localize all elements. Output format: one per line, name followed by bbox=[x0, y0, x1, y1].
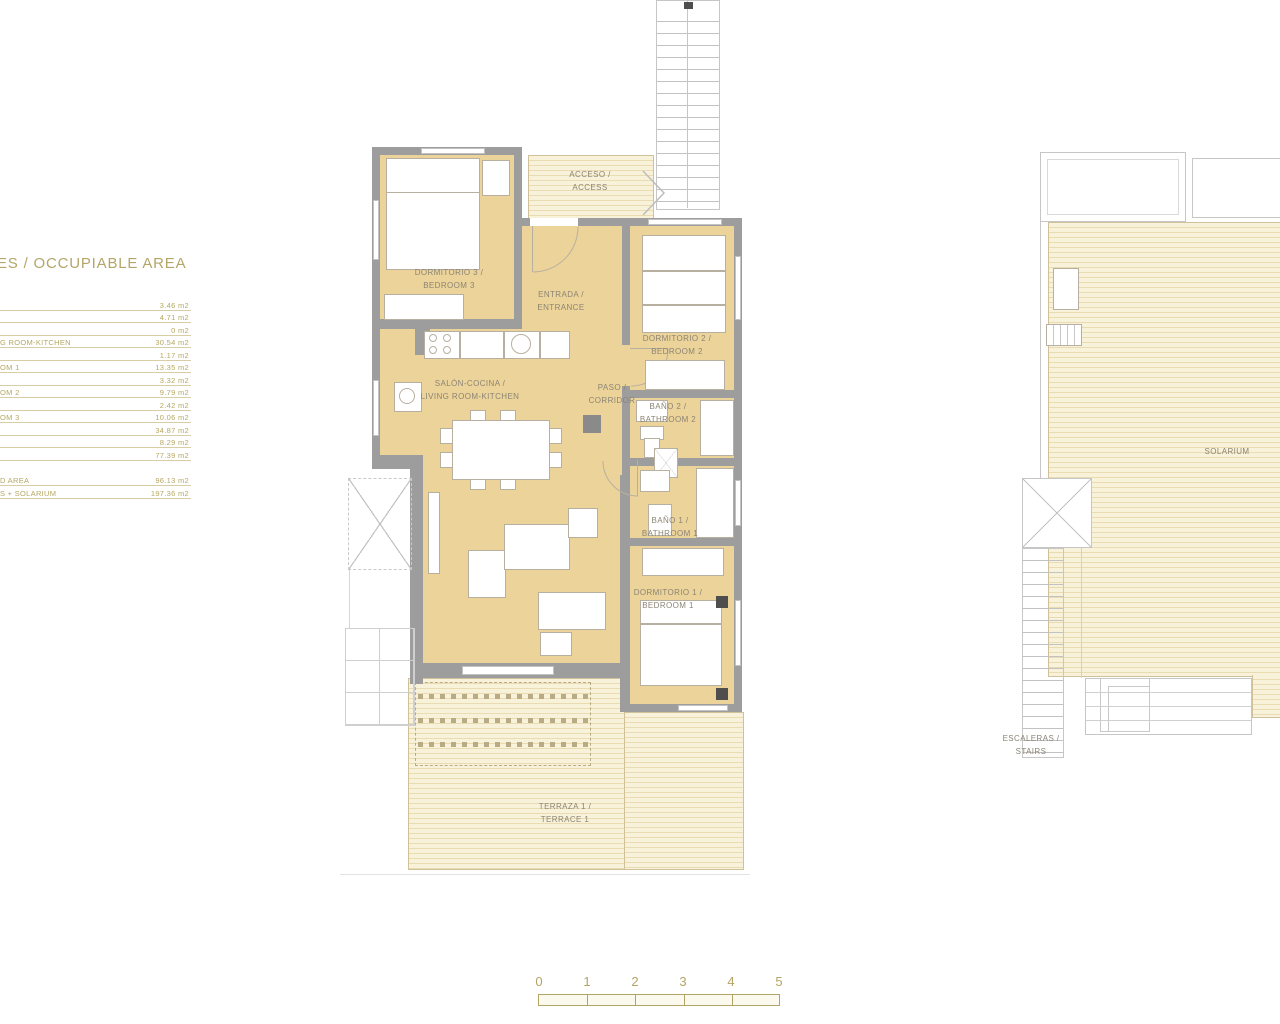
scale-tick-label: 0 bbox=[528, 974, 550, 989]
floorplan-page: ES / OCCUPIABLE AREA 3.46 m2 4.71 m2 0 m… bbox=[0, 0, 1280, 1024]
scale-tick-label: 5 bbox=[768, 974, 790, 989]
scale-bar-rule bbox=[538, 994, 780, 1006]
scale-tick-label: 1 bbox=[576, 974, 598, 989]
scale-bar: 0 1 2 3 4 5 bbox=[0, 0, 1280, 1024]
scale-tick-label: 3 bbox=[672, 974, 694, 989]
scale-tick-label: 2 bbox=[624, 974, 646, 989]
scale-tick-label: 4 bbox=[720, 974, 742, 989]
